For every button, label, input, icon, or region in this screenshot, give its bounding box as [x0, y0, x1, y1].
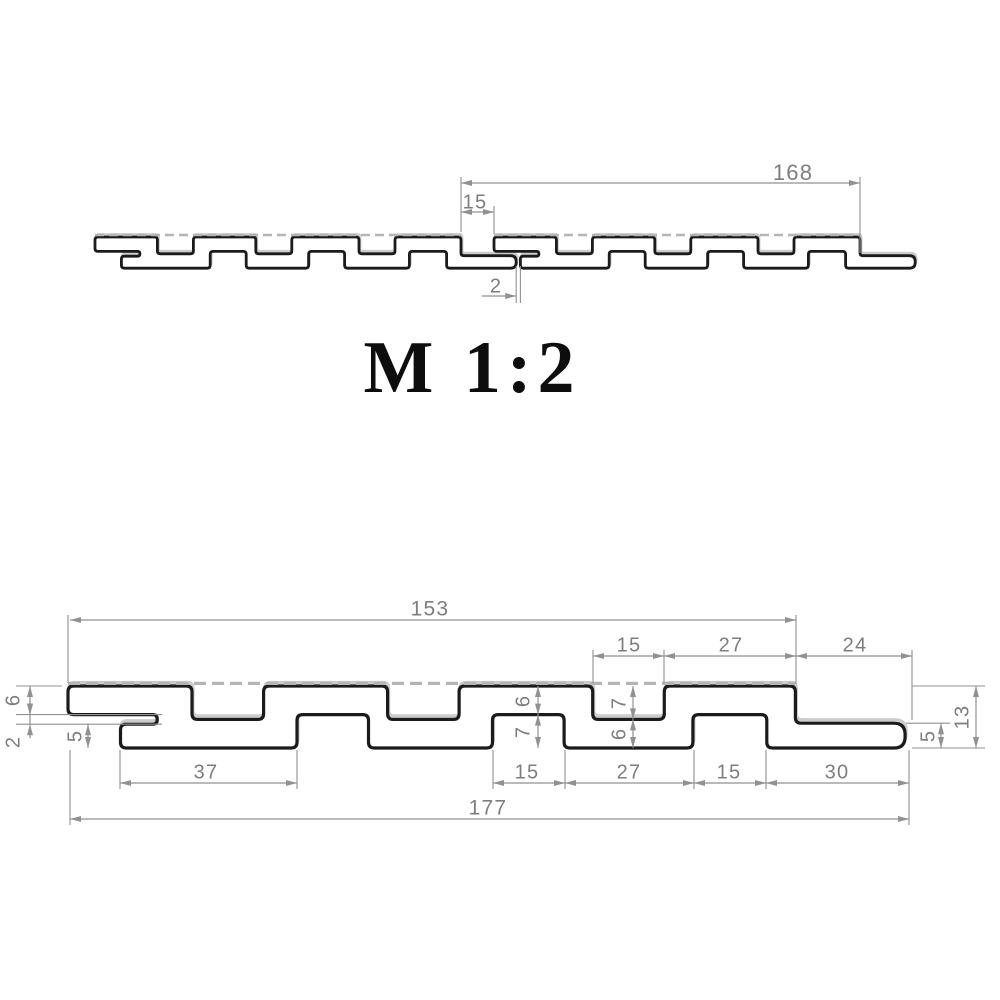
- joined-panels-view: 168152: [95, 160, 916, 303]
- dim-168: 168: [461, 160, 860, 186]
- dimension-arrow: [849, 180, 860, 186]
- dimension-arrow: [973, 737, 979, 748]
- dimension-label: 13: [951, 705, 973, 730]
- dimension-label: 2: [490, 275, 502, 297]
- dim-13: 13: [951, 686, 979, 748]
- dimension-label: 15: [617, 634, 642, 656]
- dimension-arrow: [505, 293, 516, 299]
- dimension-label: 7: [608, 697, 630, 709]
- panel-profile-outline: [494, 237, 915, 268]
- dimension-label: 2: [2, 736, 24, 748]
- dimension-label: 15: [463, 191, 488, 213]
- dim-15: 15: [461, 191, 494, 215]
- scale-label: M 1:2: [364, 327, 581, 409]
- dimension-arrow: [535, 715, 541, 726]
- single-panel-view: 15315272437152715301776776625513: [2, 598, 985, 825]
- dimension-label: 15: [515, 761, 540, 783]
- dimension-arrow: [973, 686, 979, 697]
- dimension-arrow: [796, 653, 807, 659]
- dim-153: 153: [70, 598, 796, 623]
- dim-15: 15: [493, 761, 565, 786]
- dimension-label: 5: [917, 730, 939, 742]
- dimension-label: 6: [608, 728, 630, 740]
- dimension-label: 27: [719, 634, 744, 656]
- dim-37: 37: [120, 761, 297, 786]
- dimension-arrow: [535, 737, 541, 748]
- dimension-label: 27: [617, 761, 642, 783]
- dim-2: 2: [482, 275, 516, 299]
- dimension-arrow: [755, 780, 766, 786]
- panel-profile-outline: [95, 237, 516, 268]
- dimension-arrow: [120, 780, 131, 786]
- dimension-arrow: [630, 708, 636, 719]
- dimension-label: 168: [773, 160, 813, 185]
- dimension-arrow: [70, 816, 81, 822]
- dimension-arrow: [27, 704, 33, 715]
- dimension-arrow: [664, 653, 675, 659]
- dimension-arrow: [554, 780, 565, 786]
- dimension-arrow: [630, 686, 636, 697]
- dim-5: 5: [64, 724, 91, 748]
- dimension-arrow: [694, 780, 705, 786]
- dim-27: 27: [565, 761, 694, 786]
- dimension-label: 5: [64, 730, 86, 742]
- dimension-arrow: [593, 653, 604, 659]
- dimension-arrow: [683, 780, 694, 786]
- dimension-label: 37: [194, 761, 219, 783]
- dimension-arrow: [286, 780, 297, 786]
- dimension-arrow: [70, 617, 81, 623]
- dim-30: 30: [766, 761, 909, 786]
- dimension-arrow: [461, 180, 472, 186]
- dimension-arrow: [901, 653, 912, 659]
- dim-6: 6: [2, 686, 33, 715]
- dimension-label: 7: [512, 726, 534, 738]
- dimension-arrow: [785, 653, 796, 659]
- dimension-arrow: [766, 780, 777, 786]
- panel-profile-drawing: 16815215315272437152715301776776625513M …: [0, 0, 1000, 1000]
- dim-27: 27: [664, 634, 796, 659]
- dim-5: 5: [917, 723, 944, 748]
- technical-drawing-page: 16815215315272437152715301776776625513M …: [0, 0, 1000, 1000]
- dimension-arrow: [565, 780, 576, 786]
- dimension-label: 153: [411, 598, 450, 621]
- dimension-arrow: [785, 617, 796, 623]
- panel-profile-outline: [68, 686, 905, 748]
- dim-15: 15: [694, 761, 766, 786]
- dimension-arrow: [653, 653, 664, 659]
- dimension-label: 177: [469, 797, 508, 820]
- dim-24: 24: [796, 634, 912, 659]
- dim-7: 7: [512, 715, 541, 748]
- dimension-label: 6: [512, 695, 534, 707]
- dimension-arrow: [27, 686, 33, 697]
- dimension-label: 30: [825, 761, 850, 783]
- dimension-arrow: [493, 780, 504, 786]
- dimension-arrow: [27, 724, 33, 735]
- dimension-label: 15: [717, 761, 742, 783]
- dimension-label: 6: [2, 694, 24, 706]
- dim-177: 177: [70, 797, 909, 822]
- dim-15: 15: [593, 634, 664, 659]
- dimension-arrow: [898, 780, 909, 786]
- dimension-label: 24: [843, 634, 868, 656]
- dimension-arrow: [898, 816, 909, 822]
